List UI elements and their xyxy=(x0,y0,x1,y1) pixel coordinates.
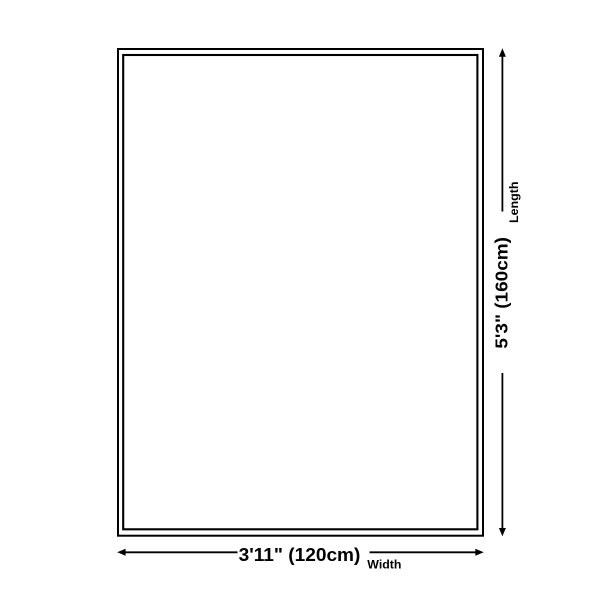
svg-text:Length: Length xyxy=(507,182,521,224)
svg-text:5'3" (160cm): 5'3" (160cm) xyxy=(492,237,512,349)
svg-text:Width: Width xyxy=(367,558,401,572)
svg-text:3'11" (120cm): 3'11" (120cm) xyxy=(239,544,361,565)
